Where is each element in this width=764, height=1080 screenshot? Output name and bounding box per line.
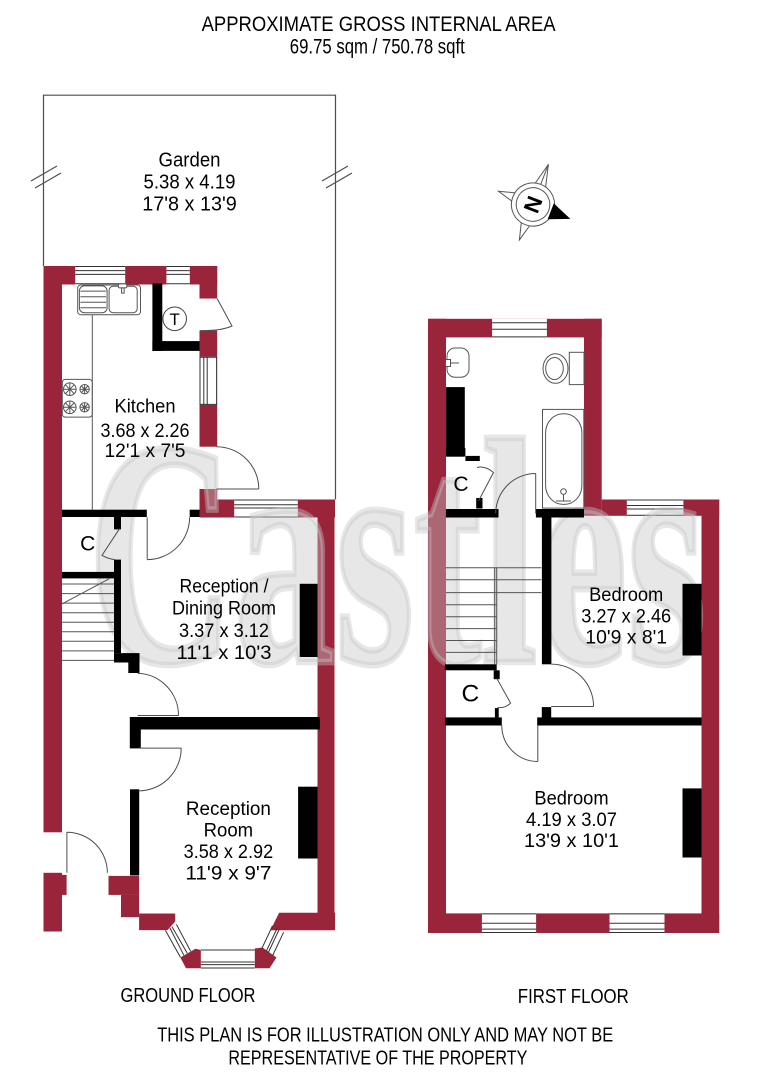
svg-text:GROUND FLOOR: GROUND FLOOR	[121, 985, 256, 1007]
svg-text:C: C	[80, 533, 95, 556]
svg-text:17'8 x 13'9: 17'8 x 13'9	[142, 194, 237, 216]
svg-text:C: C	[461, 680, 479, 707]
svg-text:Bedroom: Bedroom	[589, 585, 663, 606]
svg-text:C: C	[453, 473, 468, 496]
svg-text:3.27 x 2.46: 3.27 x 2.46	[581, 606, 671, 627]
svg-text:Kitchen: Kitchen	[115, 397, 176, 418]
svg-text:REPRESENTATIVE OF THE PROPERTY: REPRESENTATIVE OF THE PROPERTY	[228, 1048, 527, 1070]
svg-text:10'9 x 8'1: 10'9 x 8'1	[585, 628, 667, 649]
svg-text:69.75 sqm / 750.78 sqft: 69.75 sqm / 750.78 sqft	[290, 35, 465, 58]
svg-text:11'1 x 10'3: 11'1 x 10'3	[177, 643, 272, 664]
svg-text:Reception: Reception	[186, 799, 271, 820]
svg-text:3.37 x 3.12: 3.37 x 3.12	[179, 621, 269, 642]
svg-text:Garden: Garden	[159, 150, 221, 172]
svg-text:Reception /: Reception /	[180, 576, 270, 597]
svg-text:3.68 x 2.26: 3.68 x 2.26	[101, 421, 190, 442]
svg-text:Room: Room	[204, 821, 254, 842]
svg-text:APPROXIMATE GROSS INTERNAL ARE: APPROXIMATE GROSS INTERNAL AREA	[202, 13, 556, 36]
svg-text:FIRST FLOOR: FIRST FLOOR	[518, 986, 629, 1008]
svg-text:3.58 x 2.92: 3.58 x 2.92	[184, 842, 274, 863]
svg-text:Dining Room: Dining Room	[172, 599, 276, 620]
svg-text:5.38 x 4.19: 5.38 x 4.19	[144, 172, 236, 194]
svg-text:T: T	[170, 310, 180, 329]
svg-text:11'9 x 9'7: 11'9 x 9'7	[185, 864, 271, 885]
svg-text:13'9 x 10'1: 13'9 x 10'1	[524, 831, 619, 852]
svg-text:Bedroom: Bedroom	[534, 788, 608, 809]
svg-text:THIS PLAN IS FOR ILLUSTRATION: THIS PLAN IS FOR ILLUSTRATION ONLY AND M…	[157, 1025, 613, 1047]
svg-text:4.19 x 3.07: 4.19 x 3.07	[526, 810, 617, 831]
svg-text:12'1 x 7'5: 12'1 x 7'5	[105, 441, 186, 462]
